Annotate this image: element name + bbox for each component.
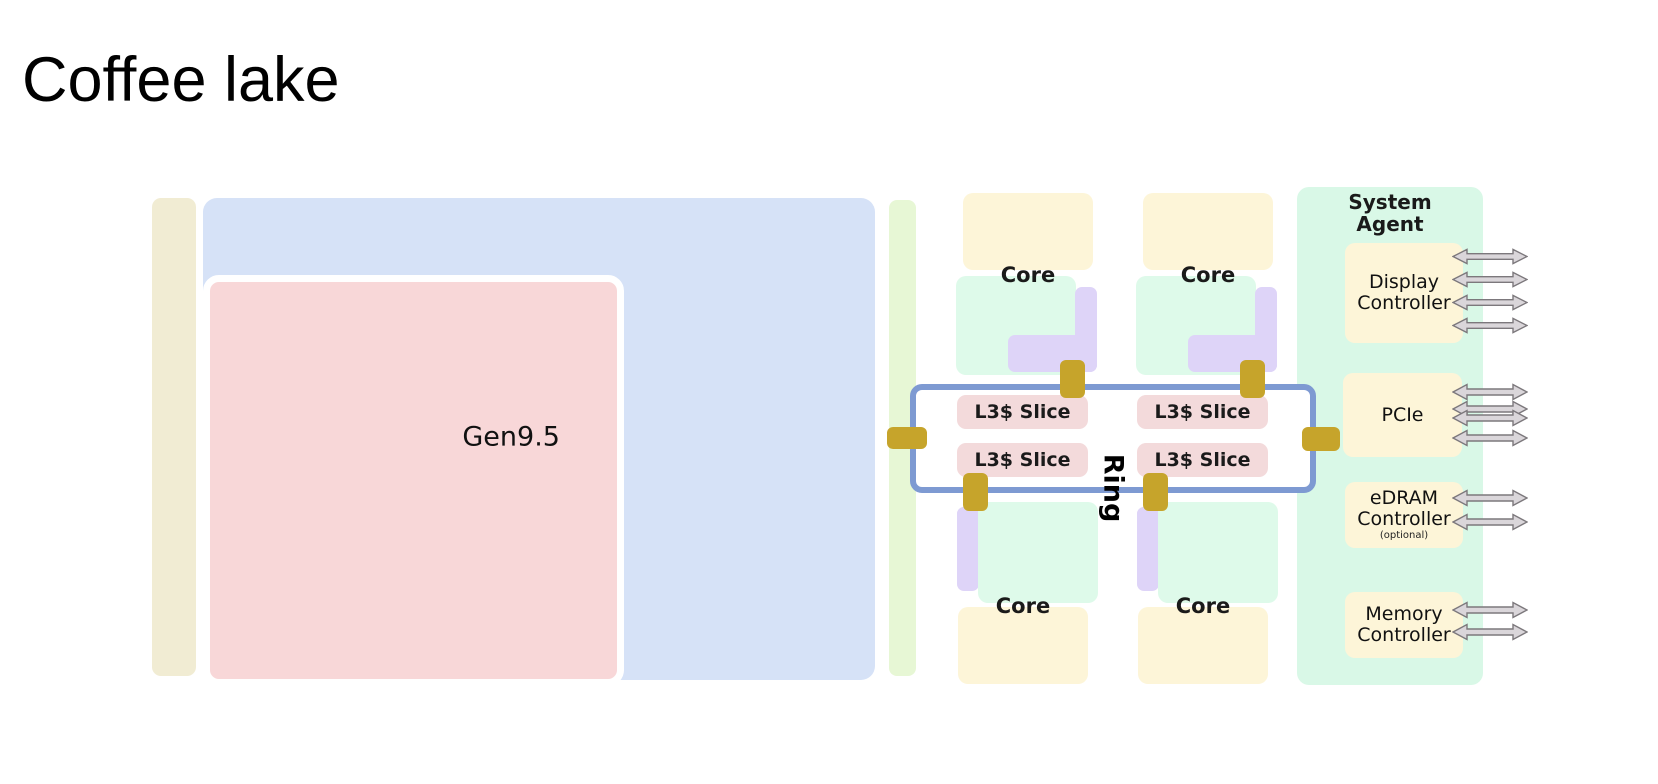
core-block <box>1138 607 1268 684</box>
gpu-block: Gen9.5 <box>203 275 624 686</box>
l3-slice-top-left: L3$ Slice <box>957 395 1088 429</box>
ring-stop-system-agent <box>1302 427 1340 451</box>
ring-label: Ring <box>1098 454 1129 523</box>
page-title: Coffee lake <box>22 44 340 116</box>
display-controller-block: Display Controller <box>1345 243 1463 343</box>
bidirectional-arrow-icon <box>1452 293 1528 312</box>
bidirectional-arrow-icon <box>1452 488 1528 508</box>
core-block <box>1143 193 1273 270</box>
system-agent-title-line1: System <box>1297 191 1483 213</box>
edram-controller-block: eDRAM Controller (optional) <box>1345 482 1463 548</box>
memory-buses <box>1452 600 1528 642</box>
edram-controller-label-line1: eDRAM <box>1370 488 1438 509</box>
ring-stop <box>1143 473 1168 511</box>
ring-stop-left <box>887 427 927 449</box>
bidirectional-arrow-icon <box>1452 270 1528 289</box>
core-label: Core <box>1143 263 1273 287</box>
pcie-buses <box>1452 382 1528 448</box>
core-label: Core <box>1138 594 1268 618</box>
display-controller-label-line1: Display <box>1369 272 1439 293</box>
memory-controller-label-line2: Controller <box>1357 625 1450 646</box>
memory-controller-label-line1: Memory <box>1365 604 1442 625</box>
gpu-label: Gen9.5 <box>462 421 560 452</box>
bidirectional-arrow-icon <box>1452 247 1528 266</box>
system-agent-title: System Agent <box>1297 191 1483 235</box>
display-controller-buses <box>1452 247 1528 339</box>
core-cache-block <box>978 502 1098 603</box>
bidirectional-arrow-icon <box>1452 408 1528 428</box>
bidirectional-arrow-icon <box>1452 428 1528 448</box>
display-controller-label-line2: Controller <box>1357 293 1450 314</box>
edram-optional-note: (optional) <box>1380 530 1428 542</box>
ring-stop <box>1240 360 1265 398</box>
bidirectional-arrow-icon <box>1452 600 1528 620</box>
bidirectional-arrow-icon <box>1452 316 1528 335</box>
ring-stop <box>1060 360 1085 398</box>
bidirectional-arrow-icon <box>1452 622 1528 642</box>
l3-slice-top-right: L3$ Slice <box>1137 395 1268 429</box>
l3-slice-bottom-right: L3$ Slice <box>1137 443 1268 477</box>
pcie-block: PCIe <box>1343 373 1462 457</box>
core-block <box>958 607 1088 684</box>
l3-slice-bottom-left: L3$ Slice <box>957 443 1088 477</box>
pcie-label: PCIe <box>1381 405 1423 426</box>
core-label: Core <box>963 263 1093 287</box>
edram-controller-label-line2: Controller <box>1357 509 1450 530</box>
system-agent-title-line2: Agent <box>1297 213 1483 235</box>
memory-controller-block: Memory Controller <box>1345 592 1463 658</box>
core-label: Core <box>958 594 1088 618</box>
bidirectional-arrow-icon <box>1452 512 1528 532</box>
edram-buses <box>1452 488 1528 532</box>
ring-stop <box>963 473 988 511</box>
core-cache-block <box>1158 502 1278 603</box>
io-strip-left <box>152 198 196 676</box>
core-block <box>963 193 1093 270</box>
